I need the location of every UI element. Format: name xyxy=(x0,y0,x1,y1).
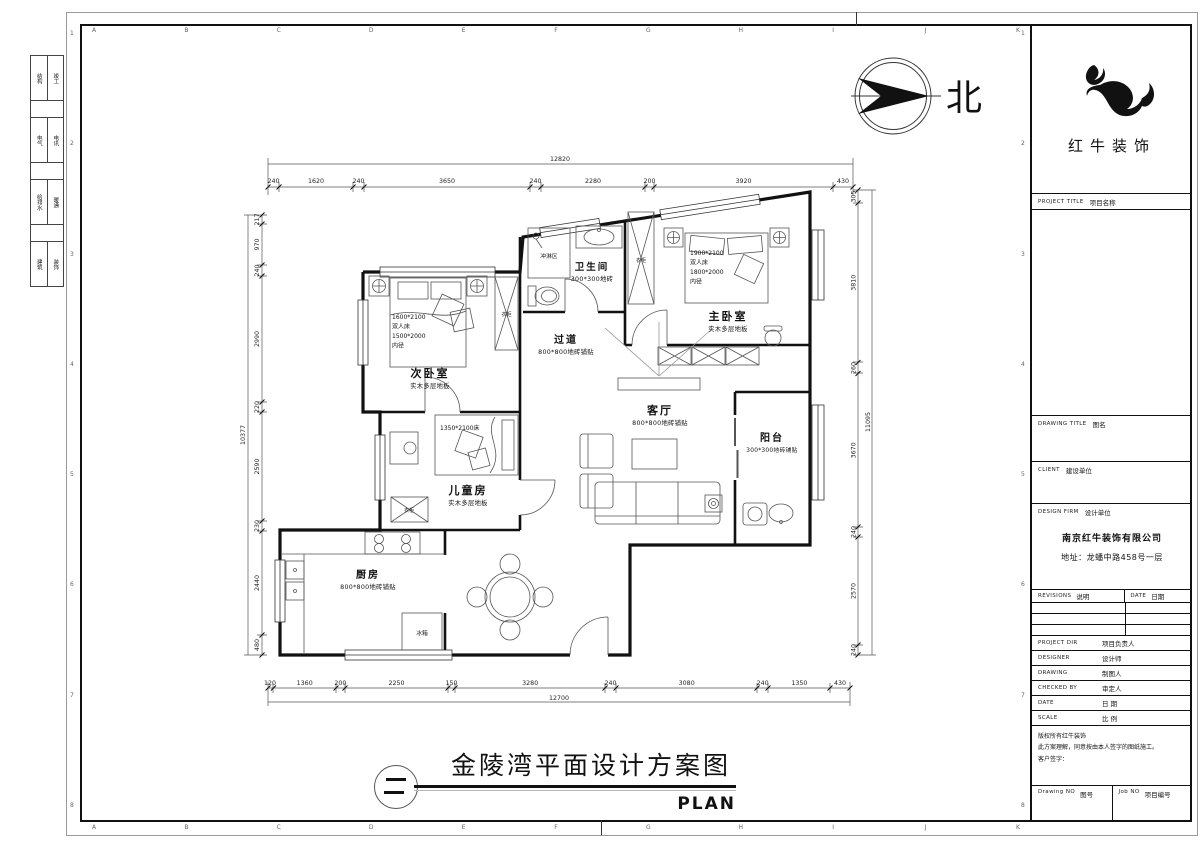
floor-label: 800*800地砖铺贴 xyxy=(340,582,396,591)
drawing-subtitle: PLAN xyxy=(414,794,736,814)
disclaimer: 版权所有红牛装饰 此方案理解，同意按由本人签字的图纸施工。 客户签字： xyxy=(1032,725,1192,785)
job-no-zh: 项目编号 xyxy=(1145,789,1171,822)
bed-note: 双人床 xyxy=(392,323,410,331)
room-label: 次卧室 xyxy=(411,366,450,380)
dim-label: 10377 xyxy=(240,425,247,445)
drawing-title-field xyxy=(1032,431,1192,461)
dim-label: 240 xyxy=(254,264,261,276)
dim-label: 1620 xyxy=(308,178,324,185)
bull-logo-icon xyxy=(1064,61,1160,127)
drawing-by-zh: 制图人 xyxy=(1102,668,1122,678)
grid-letters-bottom: ABCDEFGHIJK xyxy=(84,824,1028,831)
fold-mark-top xyxy=(856,12,857,26)
drawing-title: 金陵湾平面设计方案图 xyxy=(426,746,756,782)
disclaimer-line: 版权所有红牛装饰 xyxy=(1038,731,1188,742)
dim-label: 240 xyxy=(757,680,769,687)
drawing-sheet: ABCDEFGHIJK ABCDEFGHIJK 12345678 1234567… xyxy=(0,0,1200,844)
floor-label: 800*800地砖铺贴 xyxy=(538,347,594,356)
room-label: 主卧室 xyxy=(709,309,748,323)
floor-label: 实木多层地板 xyxy=(448,498,488,507)
dim-label: 2570 xyxy=(851,583,858,599)
drawing-no-en: Drawing NO xyxy=(1038,789,1075,822)
customer-signature-label: 客户签字： xyxy=(1038,754,1188,765)
coffee-table xyxy=(632,439,677,469)
strip-label: 建筑 xyxy=(31,242,48,286)
date-zh: 日期 xyxy=(1151,591,1164,601)
dim-label: 2990 xyxy=(254,331,261,347)
shower-label: 冲淋区 xyxy=(540,252,558,260)
dim-label: 240 xyxy=(529,178,541,185)
north-arrow: 北 xyxy=(845,48,1020,144)
client-field xyxy=(1032,477,1192,503)
dim-label: 240 xyxy=(851,526,858,538)
revisions-header: REVISIONS说明 DATE日期 xyxy=(1032,589,1192,602)
strip-pair: 电气电讯 xyxy=(30,117,64,163)
dim-label: 12820 xyxy=(550,156,570,163)
strip-pair: 建筑装饰 xyxy=(30,241,64,287)
title-underline xyxy=(414,785,736,788)
wardrobe-label: 衣柜 xyxy=(636,257,646,264)
strip-gap xyxy=(30,163,64,179)
dim-label: 11095 xyxy=(865,412,872,432)
fridge-label: 冰箱 xyxy=(416,629,428,637)
left-dimensions: 10377 217 970 240 2990 220 2590 230 2440… xyxy=(240,213,261,651)
room-label: 儿童房 xyxy=(448,483,488,497)
strip-gap xyxy=(30,225,64,241)
dim-label: 240 xyxy=(352,178,364,185)
dim-label: 305 xyxy=(851,190,858,202)
date-en: DATE xyxy=(1130,593,1146,599)
design-firm-zh: 设计单位 xyxy=(1085,507,1111,517)
dim-label: 150 xyxy=(445,680,457,687)
balcony-sink xyxy=(769,504,793,522)
firm-address: 地址：龙蟠中路458号一层 xyxy=(1061,552,1163,563)
bed-note: 1500*2000 xyxy=(392,333,426,340)
project-title-zh: 项目名称 xyxy=(1090,197,1116,207)
dim-label: 217 xyxy=(254,213,261,225)
bed xyxy=(685,233,768,303)
drawing-by-en: DRAWING xyxy=(1038,670,1094,676)
design-firm-field: 南京红牛装饰有限公司 地址：龙蟠中路458号一层 xyxy=(1032,519,1192,575)
drawing-title-en: DRAWING TITLE xyxy=(1038,421,1087,427)
revisions-zh: 说明 xyxy=(1076,591,1089,601)
project-dir-en: PROJECT DIR xyxy=(1038,640,1094,646)
right-dimensions: 11095 305 3810 260 3670 240 2570 240 xyxy=(851,190,873,656)
dim-label: 240 xyxy=(851,644,858,656)
bed-note: 内径 xyxy=(392,342,404,350)
dim-label: 260 xyxy=(851,362,858,374)
sofa xyxy=(595,482,720,524)
dim-label: 3810 xyxy=(851,275,858,291)
revision-row xyxy=(1032,624,1192,635)
strip-label: 给排水 xyxy=(31,180,48,224)
room-label: 阳台 xyxy=(760,431,784,444)
job-no-en: Job NO xyxy=(1119,789,1140,822)
checked-by-en: CHECKED BY xyxy=(1038,685,1094,691)
dim-label: 3080 xyxy=(679,680,695,687)
client-zh: 建设单位 xyxy=(1066,465,1092,475)
title-block: 红牛装饰 PROJECT TITLE项目名称 DRAWING TITLE图名 C… xyxy=(1030,24,1192,822)
dim-label: 1360 xyxy=(297,680,313,687)
designer-en: DESIGNER xyxy=(1038,655,1094,661)
dim-label: 120 xyxy=(264,680,276,687)
firm-name: 南京红牛装饰有限公司 xyxy=(1062,531,1162,544)
grid-numbers-right: 12345678 xyxy=(1021,30,1025,814)
bed-note: 双人床 xyxy=(690,259,708,267)
strip-label: 结构 xyxy=(31,56,48,100)
drawing-title-block: 金陵湾平面设计方案图 PLAN xyxy=(356,732,776,822)
bed-note: 1600*2100 xyxy=(392,314,426,321)
grid-letters-top: ABCDEFGHIJK xyxy=(84,27,1028,34)
strip-label: 暖通 xyxy=(48,180,64,224)
dim-label: 240 xyxy=(267,178,279,185)
stove xyxy=(365,532,420,554)
toilet xyxy=(535,287,559,305)
wardrobe-label: 衣柜 xyxy=(404,507,414,514)
bed xyxy=(435,415,518,475)
dim-label: 2440 xyxy=(254,575,261,591)
room-label: 厨房 xyxy=(356,568,380,581)
dim-label: 12700 xyxy=(549,695,569,702)
north-label: 北 xyxy=(946,78,982,119)
strip-pair: 结构竣工 xyxy=(30,55,64,101)
title-underline-thin xyxy=(414,790,736,791)
firm-spacer xyxy=(1032,575,1192,589)
floor-label: 800*800地砖铺贴 xyxy=(632,418,688,427)
scale-zh: 比 例 xyxy=(1102,713,1117,723)
floor-label: 实木多层地板 xyxy=(410,381,450,390)
floor-label: 实木多层地板 xyxy=(708,324,748,333)
strip-label: 电讯 xyxy=(48,118,64,162)
client-en: CLIENT xyxy=(1038,467,1060,473)
top-dimensions: 12820 240 1620 240 3650 240 2280 200 392… xyxy=(267,156,849,185)
floor-plan: 12820 240 1620 240 3650 240 2280 200 392… xyxy=(240,150,880,710)
dim-label: 3280 xyxy=(522,680,538,687)
dining-table xyxy=(485,572,535,622)
dim-label: 480 xyxy=(254,639,261,651)
bed-note: 1900*2100 xyxy=(690,250,724,257)
room-label: 卫生间 xyxy=(575,261,610,273)
date2-zh: 日 期 xyxy=(1102,698,1117,708)
room-label: 客厅 xyxy=(646,403,673,417)
strip-label: 竣工 xyxy=(48,56,64,100)
dimension-lines xyxy=(244,158,876,706)
bottom-dimensions: 12700 120 1360 200 2250 150 3280 240 308… xyxy=(264,680,846,702)
disclaimer-line: 此方案理解，同意按由本人签字的图纸施工。 xyxy=(1038,742,1188,753)
floor-label: 300*300地砖 xyxy=(571,274,614,283)
bed-note: 内径 xyxy=(690,278,702,286)
wardrobe-label: 衣柜 xyxy=(501,311,511,318)
date2-en: DATE xyxy=(1038,700,1094,706)
washer xyxy=(743,503,767,525)
scale-en: SCALE xyxy=(1038,715,1094,721)
firm-logo-area: 红牛装饰 xyxy=(1032,24,1192,193)
strip-gap xyxy=(30,101,64,117)
designer-zh: 设计师 xyxy=(1102,653,1122,663)
project-dir-zh: 项目负责人 xyxy=(1102,638,1135,648)
dim-label: 3650 xyxy=(439,178,455,185)
revisions-en: REVISIONS xyxy=(1038,593,1071,599)
dim-label: 3670 xyxy=(851,442,858,458)
drawing-no-zh: 图号 xyxy=(1080,789,1093,822)
firm-logo-text: 红牛装饰 xyxy=(1068,135,1156,156)
edge-signature-strip: 结构竣工 电气电讯 给排水暖通 建筑装饰 xyxy=(30,55,64,287)
bed-note: 1800*2000 xyxy=(690,269,724,276)
dim-label: 2280 xyxy=(585,178,601,185)
kitchen-sink xyxy=(286,561,304,579)
dim-label: 430 xyxy=(834,680,846,687)
strip-label: 电气 xyxy=(31,118,48,162)
dim-label: 240 xyxy=(604,680,616,687)
dim-label: 200 xyxy=(643,178,655,185)
tv-cabinet xyxy=(618,378,700,390)
revision-row xyxy=(1032,602,1192,613)
dim-label: 230 xyxy=(254,520,261,532)
bed-note: 1350*2100床 xyxy=(440,424,480,432)
project-title-en: PROJECT TITLE xyxy=(1038,199,1084,205)
strip-pair: 给排水暖通 xyxy=(30,179,64,225)
design-firm-en: DESIGN FIRM xyxy=(1038,509,1079,515)
dim-label: 220 xyxy=(254,401,261,413)
strip-label: 装饰 xyxy=(48,242,64,286)
number-row: Drawing NO图号 Job NO项目编号 xyxy=(1032,785,1192,822)
dim-label: 3920 xyxy=(735,178,751,185)
room-labels: 次卧室 实木多层地板 主卧室 实木多层地板 儿童房 实木多层地板 客厅 800*… xyxy=(340,252,798,637)
dim-label: 200 xyxy=(334,680,346,687)
room-label: 过道 xyxy=(554,333,578,346)
dim-label: 2590 xyxy=(254,458,261,474)
project-title-field xyxy=(1032,209,1192,415)
grid-numbers-left: 12345678 xyxy=(70,30,74,814)
dim-label: 1350 xyxy=(791,680,807,687)
checked-by-zh: 审定人 xyxy=(1102,683,1122,693)
dim-label: 970 xyxy=(254,238,261,250)
dim-label: 2250 xyxy=(388,680,404,687)
revision-row xyxy=(1032,613,1192,624)
title-bubble xyxy=(374,765,418,809)
drawing-title-zh: 图名 xyxy=(1093,419,1106,429)
floor-label: 300*300地砖铺贴 xyxy=(746,446,798,454)
dim-label: 430 xyxy=(837,178,849,185)
